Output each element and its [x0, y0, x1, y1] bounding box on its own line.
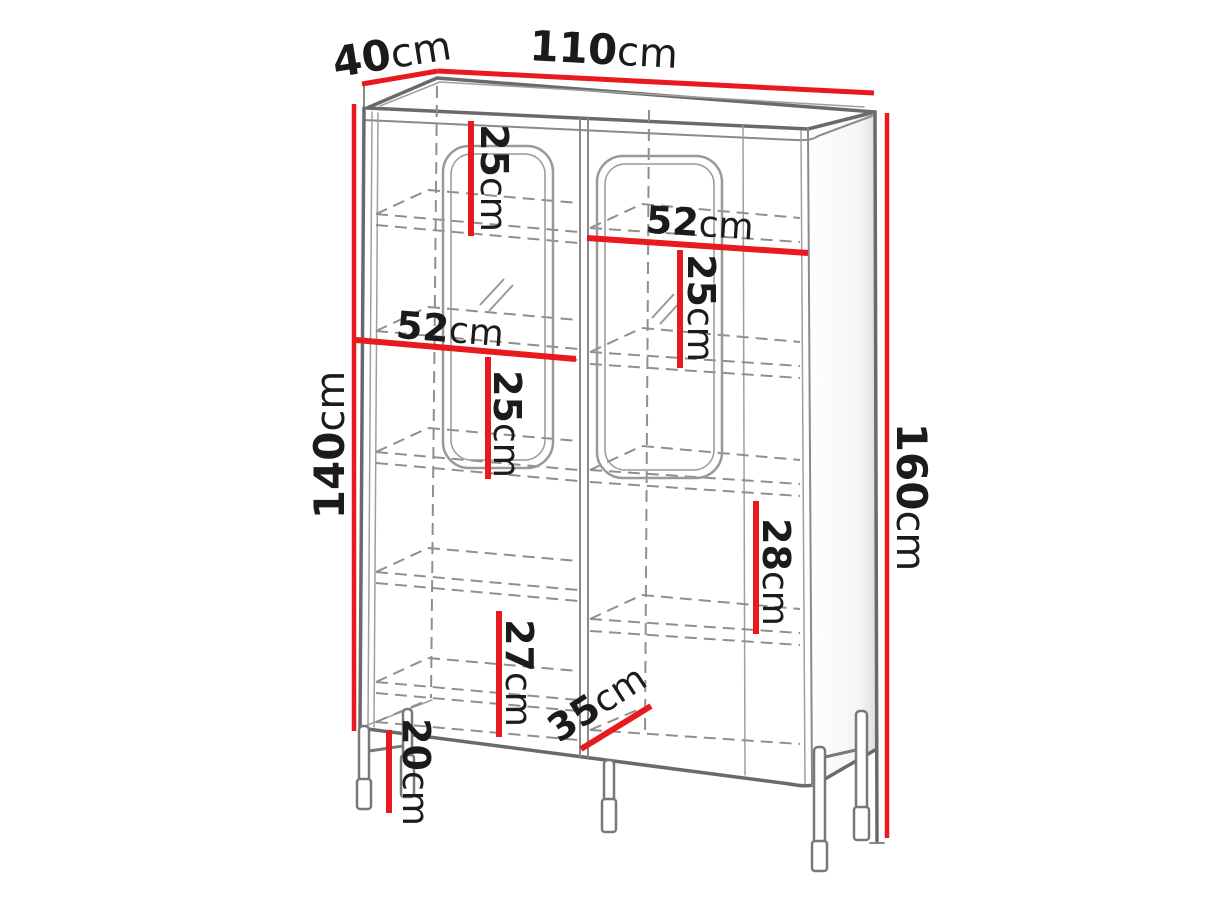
- leg-center: [602, 760, 616, 832]
- label-lower-right-28: 28cm: [754, 518, 798, 626]
- leg-right-front: [812, 747, 827, 871]
- right-side-panel: [808, 112, 877, 786]
- label-upper-left-25: 25cm: [472, 124, 516, 232]
- label-width: 110cm: [528, 21, 679, 78]
- label-left-25: 25cm: [485, 370, 529, 478]
- right-edge-silhouette: [875, 112, 877, 842]
- cabinet-diagram-canvas: 40cm 110cm 140cm 160cm 25cm 52cm 25cm 52…: [0, 0, 1214, 911]
- top-panel-inner-line: [380, 82, 864, 107]
- label-leg-20: 20cm: [394, 718, 438, 826]
- label-total-height: 160cm: [887, 423, 936, 571]
- dimension-diagram: 40cm 110cm 140cm 160cm 25cm 52cm 25cm 52…: [0, 0, 1214, 911]
- label-body-height: 140cm: [305, 371, 354, 519]
- label-right-25: 25cm: [679, 254, 723, 362]
- leg-left-front: [357, 726, 371, 809]
- label-right-52: 52cm: [645, 198, 755, 249]
- leg-right-back: [854, 711, 869, 840]
- label-lower-left-27: 27cm: [497, 619, 541, 727]
